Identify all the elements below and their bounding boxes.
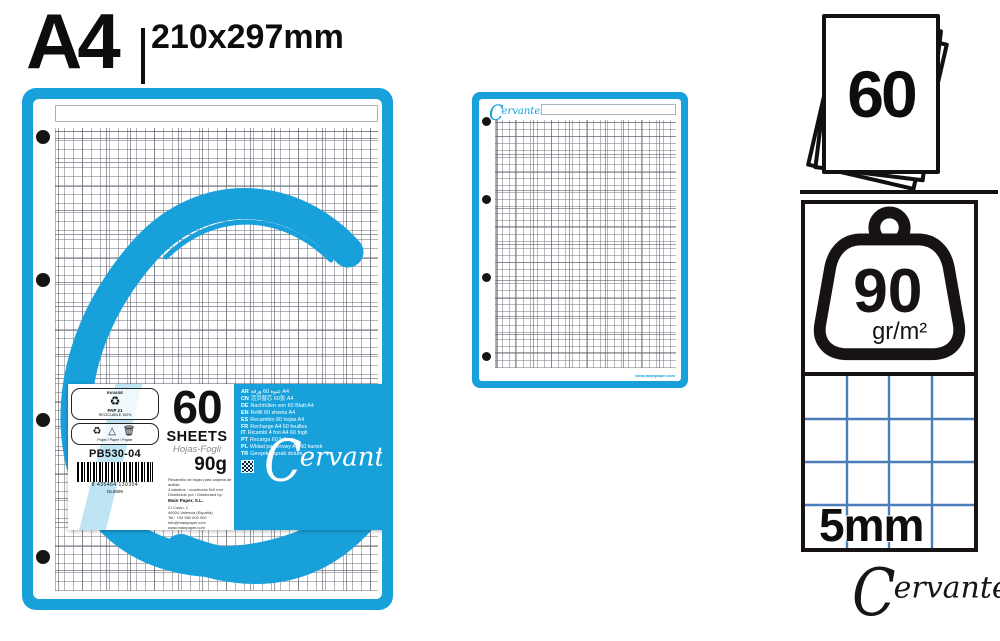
label-certifications: ENVASE ♻ PAP 21 RECICLABLE 100% ♻ △ 🗑 Pa…: [68, 384, 162, 530]
label-fineprint: Recambio de hojas para carpeta de anilla…: [162, 477, 232, 497]
barcode: 8 435464 130304 DL0909: [77, 462, 153, 494]
weight-unit: gr/m²: [872, 319, 927, 345]
name-field: [541, 104, 676, 115]
stack-page-front: 60: [822, 14, 940, 174]
punch-hole: [482, 117, 491, 126]
barcode-bars: [77, 462, 153, 482]
product-image: A4 210x297mm ENVASE ♻: [0, 0, 1000, 641]
lang-row: ARعبوة 60 ورقة A4: [241, 389, 382, 396]
website-url: www.mainpaper.com: [635, 373, 675, 378]
brand-logo-label: Cervantes®: [264, 432, 382, 490]
secondary-sheet-paper: Cervantes® www.mainpaper.com: [479, 99, 681, 381]
punch-hole: [482, 273, 491, 282]
lang-row: CN活页替芯 60张 A4: [241, 396, 382, 403]
spec-divider-line: [800, 190, 998, 194]
punch-hole: [482, 352, 491, 361]
sheet-stack-icon: 60: [800, 8, 996, 188]
lang-row: DENachfüllen von 60 Blatt A4: [241, 403, 382, 410]
sheets-word: SHEETS: [162, 430, 232, 445]
manufacturer-name: Main Paper, S.L.: [162, 498, 232, 503]
recycle-caption: RECICLABLE 100%: [75, 413, 155, 417]
product-label: ENVASE ♻ PAP 21 RECICLABLE 100% ♻ △ 🗑 Pa…: [68, 384, 382, 530]
label-languages: ARعبوة 60 ورقة A4 CN活页替芯 60张 A4 DENachfü…: [234, 384, 382, 530]
punch-hole: [482, 195, 491, 204]
lang-row: FRRecharge A4 60 feuilles: [241, 424, 382, 431]
main-sheet-paper: ENVASE ♻ PAP 21 RECICLABLE 100% ♻ △ 🗑 Pa…: [33, 99, 382, 599]
recycle-box-2: ♻ △ 🗑 Papel / Paper / Papier: [71, 423, 159, 445]
paper-dimensions: 210x297mm: [151, 18, 344, 57]
eco-caption: Papel / Paper / Papier: [75, 438, 155, 442]
product-code: PB530-04: [71, 448, 159, 460]
recycle-triangle-icon: ♻: [75, 395, 155, 408]
paper-format: A4: [26, 2, 116, 80]
grid-sample: 5mm: [805, 376, 974, 548]
sheet-count-badge: 60: [847, 56, 914, 132]
punch-hole: [36, 273, 50, 287]
punch-hole: [36, 130, 50, 144]
lang-row: ENRefill 60 sheets A4: [241, 410, 382, 417]
manufacturer-address: C/ Colón, 1 46004 Valencia (España) Tel.…: [162, 505, 232, 530]
label-quantity: 60 SHEETS Hojas-Fogli 90g Recambio de ho…: [162, 384, 234, 530]
main-sheet: ENVASE ♻ PAP 21 RECICLABLE 100% ♻ △ 🗑 Pa…: [22, 88, 393, 610]
secondary-sheet: Cervantes® www.mainpaper.com: [472, 92, 688, 388]
paper-weight: 90g: [162, 455, 232, 475]
punch-hole: [36, 413, 50, 427]
punch-hole: [36, 550, 50, 564]
weight-value: 90: [853, 256, 922, 326]
grid-size-label: 5mm: [819, 502, 923, 548]
barcode-number: 8 435464 130304: [77, 482, 153, 488]
header-divider: [141, 28, 145, 84]
eco-icons: ♻ △ 🗑: [75, 426, 155, 438]
qr-code-icon: [241, 460, 254, 473]
brand-logo-footer: Cervantes®: [852, 560, 1000, 626]
batch-code: DL0909: [77, 489, 153, 494]
spec-panel: 90 gr/m² 5mm: [801, 200, 978, 552]
recycle-box-1: ENVASE ♻ PAP 21 RECICLABLE 100%: [71, 388, 159, 420]
graph-grid: [495, 120, 676, 368]
sheet-count: 60: [162, 386, 232, 430]
weight-icon: 90 gr/m²: [805, 204, 974, 372]
lang-row: ESRecambio 60 hojas A4: [241, 417, 382, 424]
